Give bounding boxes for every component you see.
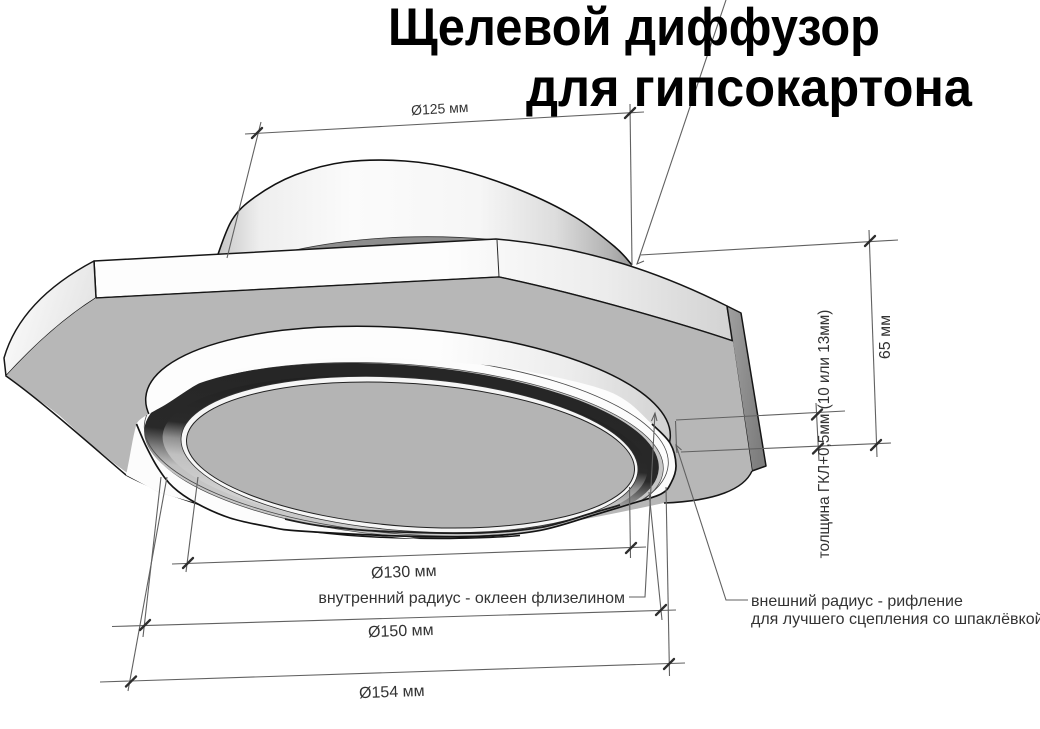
svg-text:65 мм: 65 мм	[877, 315, 894, 359]
svg-text:Ø130 мм: Ø130 мм	[371, 563, 437, 582]
svg-text:внешний радиус - рифление: внешний радиус - рифление	[751, 593, 963, 610]
svg-text:толщина ГКЛ+0,5мм (10 или 13мм: толщина ГКЛ+0,5мм (10 или 13мм)	[816, 310, 833, 559]
svg-text:внутренний радиус - оклеен фли: внутренний радиус - оклеен флизелином	[318, 590, 625, 607]
svg-text:Ø125 мм: Ø125 мм	[411, 99, 469, 118]
svg-text:Ø150 мм: Ø150 мм	[368, 622, 434, 641]
svg-text:для лучшего сцепления со шпакл: для лучшего сцепления со шпаклёвкой	[751, 611, 1040, 628]
svg-text:Ø154 мм: Ø154 мм	[359, 683, 425, 702]
svg-text:Щелевой диффузор: Щелевой диффузор	[388, 0, 880, 57]
svg-text:для гипсокартона: для гипсокартона	[526, 58, 973, 118]
